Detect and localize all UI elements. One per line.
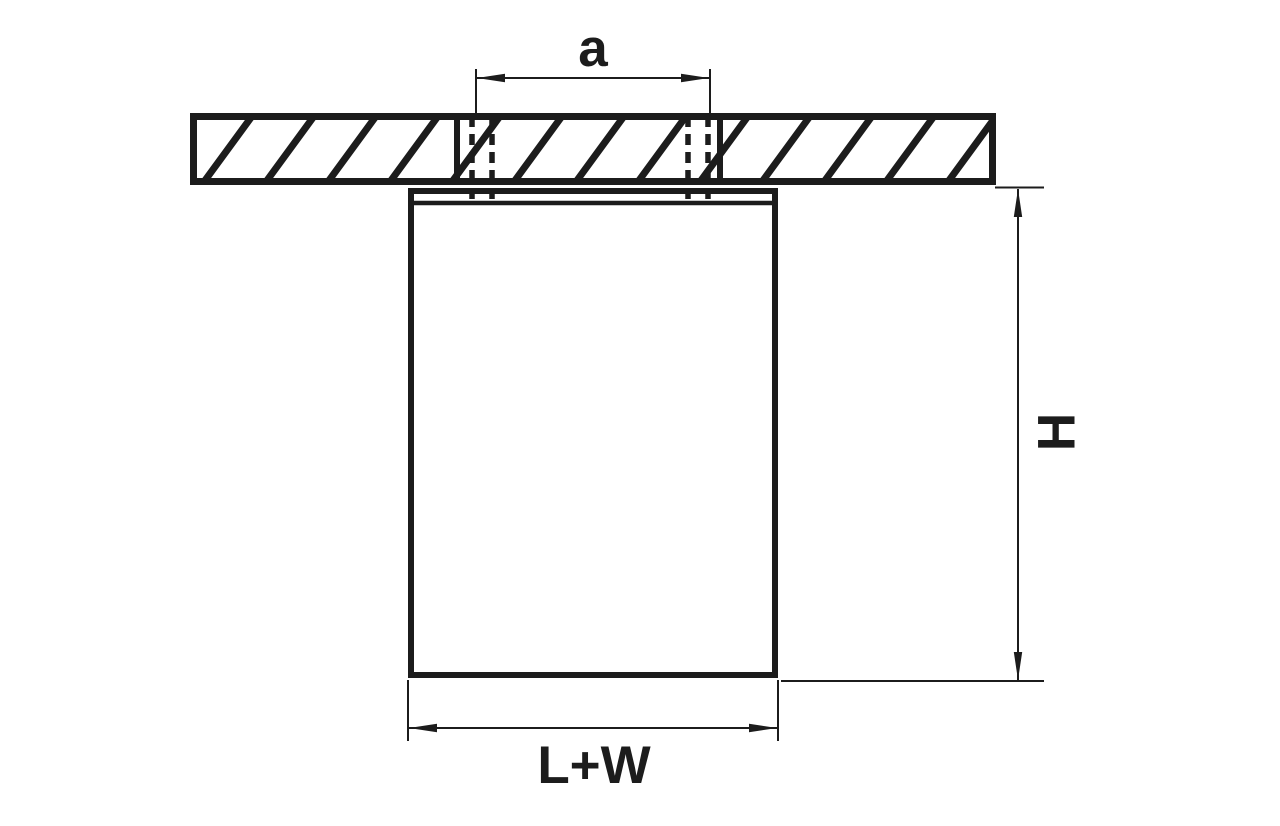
ceiling-hatch: [198, 108, 1002, 190]
dimension-screw-spacing: a: [476, 19, 710, 114]
arrowhead-right-icon: [681, 74, 709, 82]
diagram-canvas: a H L+W: [0, 0, 1280, 826]
label-width: L+W: [537, 736, 650, 795]
arrowhead-down-icon: [1014, 652, 1022, 680]
ceiling-slab-outline: [194, 117, 993, 182]
arrowhead-right-icon: [749, 724, 777, 732]
label-screw-spacing: a: [578, 19, 608, 78]
fixture-dimension-drawing: a H L+W: [0, 0, 1280, 826]
label-height: H: [1028, 413, 1087, 451]
dimension-height: H: [781, 188, 1087, 682]
ceiling-slab: [194, 108, 1003, 190]
fixture-body: [408, 191, 778, 675]
fixture-body-outline: [411, 191, 775, 675]
arrowhead-left-icon: [477, 74, 505, 82]
arrowhead-left-icon: [409, 724, 437, 732]
arrowhead-up-icon: [1014, 189, 1022, 217]
dimension-width: L+W: [408, 680, 778, 795]
